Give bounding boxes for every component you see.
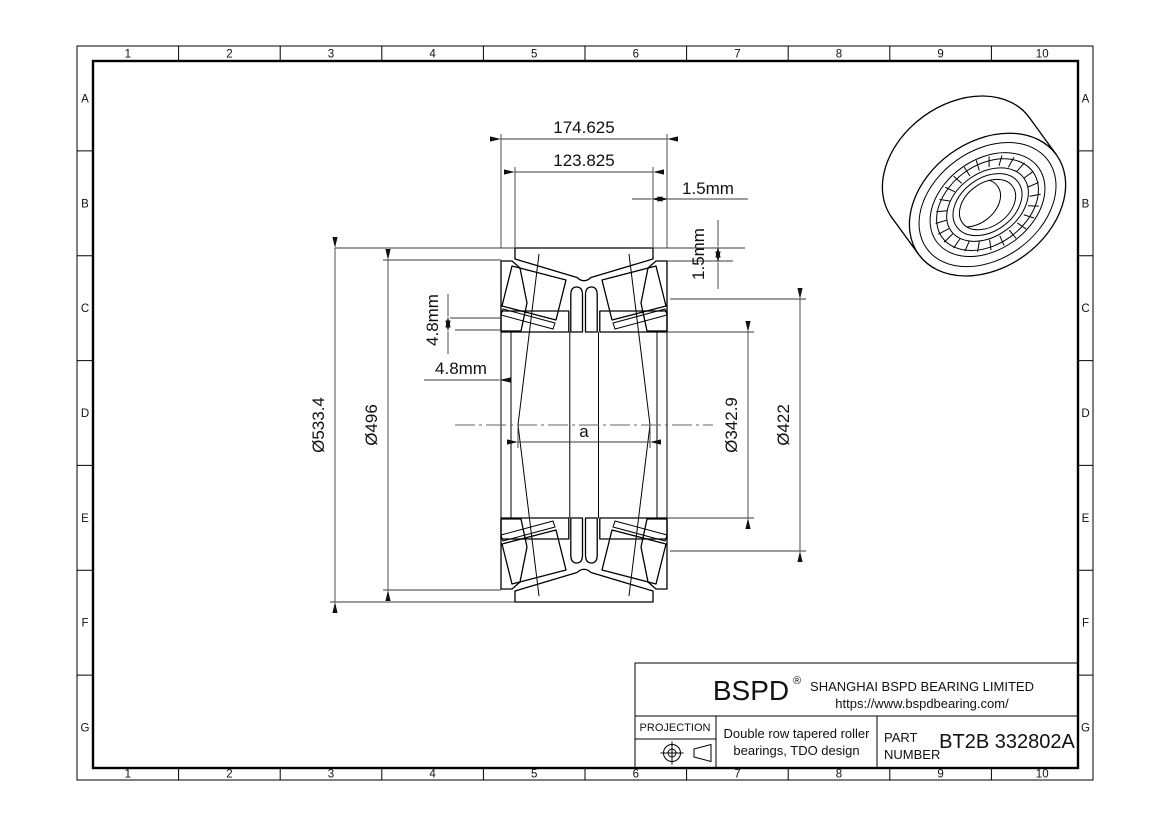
company-logo: BSPD [713,675,789,706]
grid-row-label: A [81,93,89,105]
extension-lines [330,134,806,602]
grid-row-label: B [1082,198,1090,210]
grid-col-label: 6 [633,49,639,61]
part-label-line1: PART [884,730,918,745]
title-block: BSPD ® SHANGHAI BSPD BEARING LIMITED htt… [635,663,1078,768]
dim-standout-horizontal: 4.8mm [435,359,487,378]
dim-overall-width: 174.625 [553,118,614,137]
cage-bar-right-bottom [613,521,667,541]
grid-col-label: 3 [328,49,334,61]
registered-trademark-mark: ® [793,675,801,687]
grid-rows-right: A B C D E F G [1081,93,1090,734]
grid-row-label: F [81,618,88,630]
cage-bar-right-top [613,309,667,329]
grid-col-label: 8 [836,769,842,781]
grid-col-label: 5 [531,769,537,781]
bearing-3d-view [855,66,1094,305]
part-description-line2: bearings, TDO design [733,743,859,758]
grid-row-label: E [1082,513,1090,525]
engineering-drawing: 1 2 3 4 5 6 7 8 9 10 1 2 3 4 5 6 7 8 9 1… [0,0,1170,827]
grid-row-label: C [81,303,89,315]
cone-front-rib-left-bottom [571,518,583,563]
grid-row-label: G [1081,723,1090,735]
cage-bar-left-bottom [501,521,555,541]
grid-row-label: G [81,723,90,735]
grid-col-label: 10 [1036,49,1049,61]
cage-bar-left-top [501,309,555,329]
grid-col-label: 1 [125,49,131,61]
grid-col-label: 8 [836,49,842,61]
grid-col-label: 5 [531,49,537,61]
grid-col-label: 6 [633,769,639,781]
grid-col-label: 1 [125,769,131,781]
part-label-line2: NUMBER [884,747,940,762]
company-name: SHANGHAI BSPD BEARING LIMITED [810,679,1034,694]
grid-col-label: 9 [937,769,943,781]
cone-front-rib-right-bottom [586,518,598,563]
dim-cup-width: 123.825 [553,151,614,170]
grid-col-label: 4 [429,49,436,61]
dim-pressure-center: a [579,422,589,441]
company-website: https://www.bspdbearing.com/ [835,696,1009,711]
grid-col-label: 7 [734,49,740,61]
grid-columns-bottom: 1 2 3 4 5 6 7 8 9 10 [125,769,1049,781]
grid-col-label: 10 [1036,769,1049,781]
grid-col-label: 9 [937,49,943,61]
section-top-half [501,248,667,332]
dim-flange-diameter: Ø496 [362,404,381,446]
grid-row-label: F [1082,618,1089,630]
cone-front-rib-right-top [586,287,598,332]
grid-row-label: D [1081,408,1089,420]
grid-row-label: A [1082,93,1090,105]
part-description-line1: Double row tapered roller [724,726,871,741]
grid-rows-left: A B C D E F G [81,93,90,734]
projection-symbol-icon [661,742,712,765]
outer-ring-cup-top [515,248,653,281]
dim-bore-diameter: Ø342.9 [722,397,741,453]
dimensions: 174.625 123.825 1.5mm 1.5mm 4.8mm 4.8mm … [309,118,806,602]
dim-offset-side: 1.5mm [689,228,708,280]
cone-front-rib-left-top [571,287,583,332]
grid-row-label: C [1081,303,1089,315]
grid-col-label: 7 [734,769,740,781]
grid-columns-top: 1 2 3 4 5 6 7 8 9 10 [125,49,1049,61]
projection-label: PROJECTION [640,722,711,734]
section-bottom-half [501,518,667,602]
grid-row-label: D [81,408,89,420]
dim-standout-vertical: 4.8mm [423,294,442,346]
grid-row-label: E [81,513,89,525]
dim-outer-diameter: Ø533.4 [309,397,328,453]
grid-col-label: 4 [429,769,436,781]
dim-offset-top: 1.5mm [682,179,734,198]
outer-ring-cup-bottom [515,569,653,602]
dim-rib-diameter: Ø422 [774,404,793,446]
drawing-sheet: 1 2 3 4 5 6 7 8 9 10 1 2 3 4 5 6 7 8 9 1… [0,0,1170,827]
grid-col-label: 3 [328,769,334,781]
grid-col-label: 2 [226,769,232,781]
part-number: BT2B 332802A [939,731,1075,753]
grid-row-label: B [81,198,89,210]
grid-col-label: 2 [226,49,232,61]
